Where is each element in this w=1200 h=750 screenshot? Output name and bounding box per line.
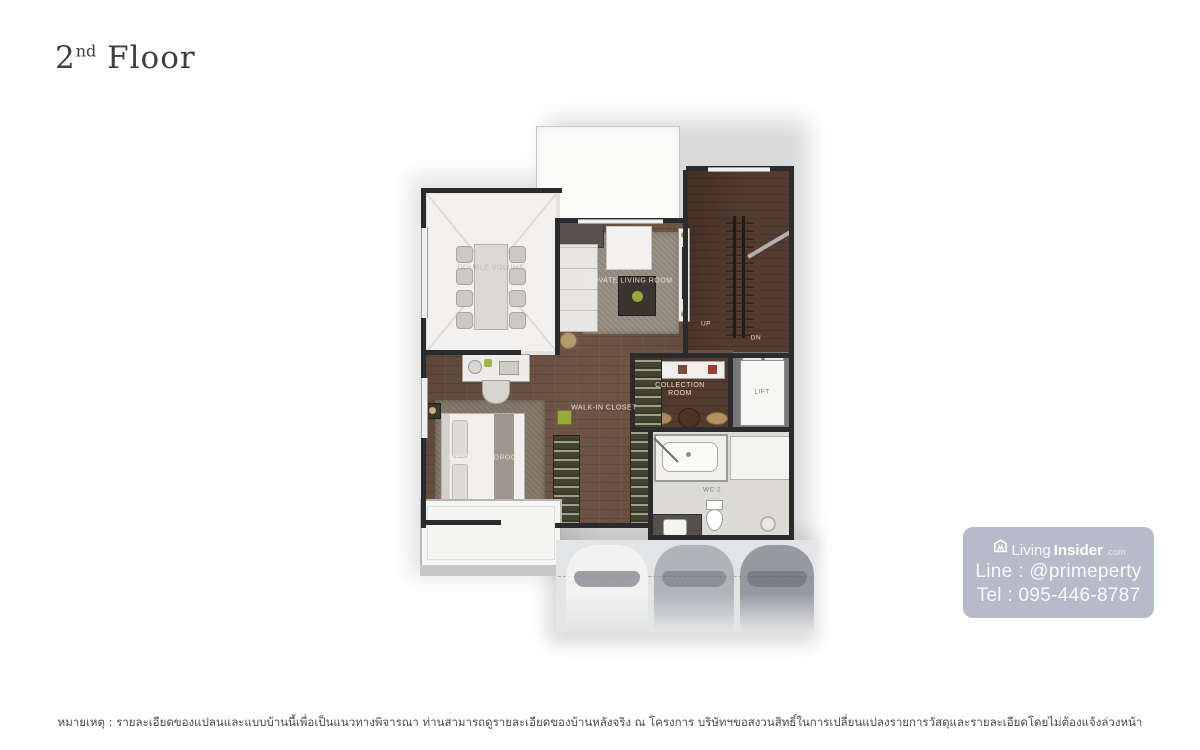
toilet (704, 500, 724, 532)
side-table (560, 332, 577, 349)
bath-door-swing (652, 436, 682, 466)
disclaimer-note: หมายเหตุ : รายละเอียดของแปลนและแบบบ้านนี… (0, 714, 1200, 732)
wall (630, 353, 792, 358)
plant-icon (557, 410, 572, 425)
balcony-ledge (420, 565, 558, 576)
sofa (558, 244, 598, 332)
pillow (452, 464, 468, 502)
stair-dn-label: DN (751, 335, 761, 342)
dining-chair (509, 246, 526, 263)
wall (421, 520, 501, 525)
collection-room-label: COLLECTION ROOM (655, 382, 705, 398)
plant-icon (632, 291, 643, 302)
window (421, 378, 428, 438)
double-volume-label: DOUBLE VOLUME (458, 265, 525, 272)
watermark-phone: Tel : 095-446-8787 (977, 585, 1141, 607)
decor-item (678, 365, 687, 374)
pillow (452, 420, 468, 458)
plant-icon (484, 359, 492, 367)
brand-prefix: Living (1012, 542, 1051, 559)
window (708, 167, 770, 172)
watermark-card: LivingInsider.com Line : @primeperty Tel… (963, 527, 1154, 618)
watermark-brand: LivingInsider.com (992, 538, 1126, 559)
wc-label: WC 2 (703, 487, 721, 494)
decor-bag (678, 408, 700, 428)
wall (630, 353, 635, 432)
walk-in-closet-label: WALK-IN CLOSET (571, 405, 637, 412)
dining-table (474, 244, 508, 330)
dining-chair (509, 312, 526, 329)
dining-chair (456, 312, 473, 329)
floor-number: 2 (55, 40, 76, 76)
desk (462, 354, 530, 382)
stair-rail (742, 216, 745, 338)
watermark-line-id: Line : @primeperty (975, 561, 1141, 583)
lamp-icon (429, 407, 436, 414)
private-living-room-label: PRIVATE LIVING ROOM (585, 278, 672, 285)
balcony (420, 499, 562, 567)
car-windshield (747, 571, 806, 587)
tub-drain (686, 452, 691, 457)
desk-laptop (499, 361, 519, 375)
dining-chair (456, 246, 473, 263)
window (421, 228, 428, 318)
desk-chair (482, 380, 510, 404)
service-ledge (730, 436, 792, 480)
car-windshield (662, 571, 726, 587)
dining-chair (456, 290, 473, 307)
wall (630, 427, 794, 432)
master-bedroom-label: MASTER BEDROOM (449, 455, 523, 462)
page-title: 2nd Floor (55, 40, 196, 76)
decor-item (708, 365, 717, 374)
ottoman-table (606, 226, 652, 270)
balcony-inner-line (427, 506, 555, 560)
brand-suffix: Insider (1054, 542, 1103, 559)
wall (683, 170, 688, 355)
dining-chair (509, 290, 526, 307)
car-ghost (566, 545, 648, 633)
brand-tld: .com (1106, 547, 1126, 557)
wall (421, 188, 562, 193)
livinginsider-logo-icon (992, 538, 1009, 555)
floor-ordinal: nd (76, 42, 97, 61)
desk-lamp (468, 360, 482, 374)
toilet-bowl (706, 509, 723, 531)
wall (421, 350, 521, 355)
car-ghost (740, 545, 814, 633)
sink (663, 519, 687, 536)
shower-drain (760, 516, 776, 532)
floor-word: Floor (96, 40, 195, 76)
floor-plan: UP DN DOUBLE VOLUME PRIVATE LIVING ROOM (408, 118, 818, 643)
decor-bag (706, 412, 728, 425)
stair-break-line (746, 223, 794, 263)
wall (555, 222, 560, 355)
wall (728, 353, 733, 432)
lift-label: LIFT (754, 389, 769, 396)
car-ghost (654, 545, 734, 633)
wall (555, 523, 652, 528)
car-windshield (574, 571, 640, 587)
stair-rail (733, 216, 736, 338)
window (578, 219, 663, 224)
stair-up-label: UP (701, 321, 711, 328)
